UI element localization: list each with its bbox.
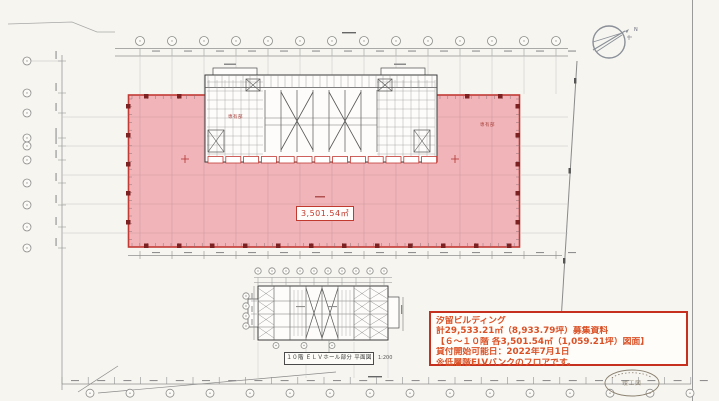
grid-bubbles-left: [23, 57, 31, 252]
annotation-line-1: 汐留ビルディング: [436, 316, 681, 326]
stamp-label: 竣工図: [612, 379, 652, 387]
grid-bubbles-top: [136, 37, 561, 46]
annotation-box: 汐留ビルディング 計29,533.21㎡（8,933.79坪）募集資料 【６～１…: [429, 311, 688, 366]
detail-caption: １０階 ＥＬＶホール部分 平面図: [284, 352, 374, 365]
compass-north-label: N: [634, 27, 638, 33]
annotation-line-3: 【６～１０階 各3,501.54㎡（1,059.21坪）図面】: [436, 337, 681, 347]
floor-plan-sheet: 3,501.54㎡ 専有部 専有部 １０階 ＥＬＶホール部分 平面図 1:200…: [0, 0, 719, 401]
north-compass: [593, 26, 632, 58]
leader-lines: [78, 366, 336, 393]
annotation-line-2: 計29,533.21㎡（8,933.79坪）募集資料: [436, 326, 681, 336]
zone-label-right: 専有部: [480, 122, 495, 128]
annotation-line-4: 貸付開始可能日：2022年7月1日: [436, 347, 681, 357]
detail-scale: 1:200: [378, 355, 392, 361]
floor-area-label: 3,501.54㎡: [296, 206, 354, 221]
tiny-note-dash: [315, 196, 325, 198]
zone-label-left: 専有部: [228, 114, 243, 120]
annotation-line-5: ※低層階ELVバンクのフロアです。: [436, 358, 681, 368]
